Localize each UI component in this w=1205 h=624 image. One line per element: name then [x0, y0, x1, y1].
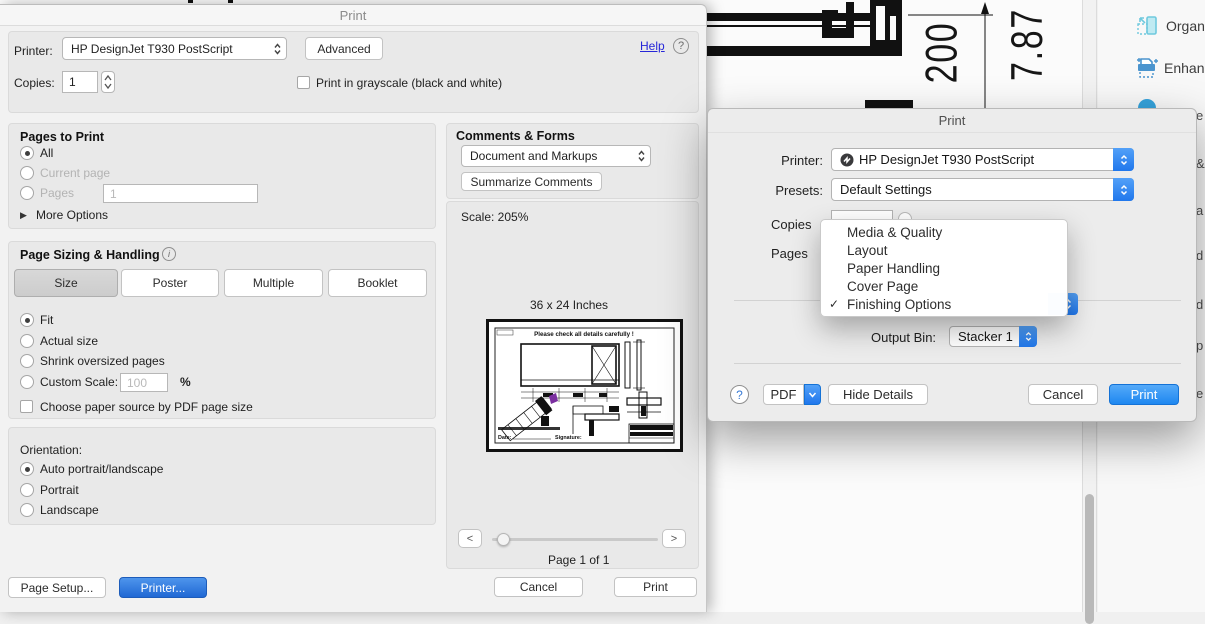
- macos-print-label: Print: [1131, 387, 1158, 402]
- cad-dimension-200: 200: [917, 22, 967, 84]
- radio-fit[interactable]: [20, 313, 34, 327]
- size-button-label: Size: [54, 276, 77, 290]
- radio-actual-size[interactable]: [20, 334, 34, 348]
- grayscale-checkbox[interactable]: [297, 76, 310, 89]
- percent-label: %: [180, 375, 191, 389]
- page-setup-button-label: Page Setup...: [21, 581, 94, 595]
- scrollbar-thumb[interactable]: [1085, 494, 1094, 624]
- radio-landscape[interactable]: [20, 503, 34, 517]
- more-options-triangle-icon[interactable]: ▶: [20, 210, 27, 221]
- more-options-label[interactable]: More Options: [36, 208, 108, 222]
- checkmark-icon: ✓: [821, 297, 847, 311]
- cad-dimension-787: 7.87: [1003, 8, 1053, 81]
- prev-page-button[interactable]: <: [458, 529, 482, 548]
- edge-text-fragment: e: [1196, 108, 1203, 123]
- chevron-right-icon: >: [671, 533, 677, 545]
- acrobat-cancel-button[interactable]: Cancel: [494, 577, 583, 597]
- radio-shrink-label: Shrink oversized pages: [40, 354, 165, 368]
- edge-text-fragment: a: [1196, 203, 1203, 218]
- page-preview-thumbnail: Please check all details carefully !: [486, 319, 683, 452]
- custom-scale-input[interactable]: 100: [120, 373, 168, 392]
- help-link[interactable]: Help: [640, 39, 665, 53]
- radio-custom-scale[interactable]: [20, 375, 34, 389]
- pages-range-input[interactable]: 1: [103, 184, 258, 203]
- printer-status-icon: [840, 153, 854, 167]
- preview-scale-text: Scale: 205%: [461, 210, 528, 224]
- macos-printer-select[interactable]: HP DesignJet T930 PostScript: [831, 148, 1134, 171]
- macos-dialog-titlebar[interactable]: Print: [708, 109, 1196, 133]
- acrobat-print-button[interactable]: Print: [614, 577, 697, 597]
- page-slider-track[interactable]: [492, 538, 658, 541]
- macos-printer-value: HP DesignJet T930 PostScript: [859, 152, 1034, 167]
- macos-dialog-title: Print: [939, 113, 966, 128]
- radio-auto-orientation[interactable]: [20, 462, 34, 476]
- macos-pages-label: Pages: [771, 246, 808, 261]
- chevron-left-icon: <: [467, 533, 473, 545]
- printer-button-label: Printer...: [141, 581, 186, 595]
- tools-panel-item-label: Enhan: [1164, 60, 1204, 76]
- page-count-text: Page 1 of 1: [548, 553, 609, 567]
- select-stepper: [1113, 148, 1134, 171]
- menu-item-paper-handling[interactable]: Paper Handling: [821, 259, 1067, 277]
- booklet-button[interactable]: Booklet: [328, 269, 427, 297]
- acrobat-print-dialog: Print Printer: HP DesignJet T930 PostScr…: [0, 4, 707, 612]
- macos-presets-value: Default Settings: [840, 182, 932, 197]
- radio-current-page-label: Current page: [40, 166, 110, 180]
- divider: [734, 300, 822, 301]
- menu-item-label: Layout: [847, 243, 888, 258]
- orientation-heading: Orientation:: [20, 443, 82, 457]
- divider: [734, 363, 1181, 364]
- page-slider-thumb[interactable]: [497, 533, 510, 546]
- comments-forms-dropdown-value: Document and Markups: [470, 149, 597, 163]
- macos-printer-label: Printer:: [753, 153, 823, 168]
- radio-current-page[interactable]: [20, 166, 34, 180]
- page-setup-button[interactable]: Page Setup...: [8, 577, 106, 598]
- size-button[interactable]: Size: [14, 269, 118, 297]
- radio-actual-size-label: Actual size: [40, 334, 98, 348]
- edge-text-fragment: e: [1196, 386, 1203, 401]
- question-glyph: ?: [736, 388, 743, 402]
- updown-chevrons-icon: [637, 150, 646, 163]
- booklet-button-label: Booklet: [357, 276, 397, 290]
- copies-label: Copies:: [14, 76, 55, 90]
- custom-scale-label: Custom Scale:: [40, 375, 118, 389]
- macos-copies-label: Copies: [771, 217, 811, 232]
- radio-pages-label: Pages: [40, 186, 74, 200]
- radio-all-label: All: [40, 146, 53, 160]
- menu-item-label: Finishing Options: [847, 297, 951, 312]
- toolbar-fragment: [188, 0, 193, 3]
- printer-dropdown[interactable]: HP DesignJet T930 PostScript: [62, 37, 287, 60]
- radio-all[interactable]: [20, 146, 34, 160]
- acrobat-dialog-title: Print: [340, 8, 367, 23]
- macos-help-button[interactable]: ?: [730, 385, 749, 404]
- info-icon[interactable]: i: [162, 247, 176, 261]
- macos-cancel-label: Cancel: [1043, 387, 1083, 402]
- divider: [1078, 300, 1181, 301]
- menu-item-cover-page[interactable]: Cover Page: [821, 277, 1067, 295]
- menu-item-label: Media & Quality: [847, 225, 942, 240]
- edge-text-fragment: d: [1196, 248, 1203, 263]
- radio-auto-orientation-label: Auto portrait/landscape: [40, 462, 163, 476]
- multiple-button-label: Multiple: [253, 276, 294, 290]
- hide-details-label: Hide Details: [843, 387, 913, 402]
- poster-button[interactable]: Poster: [121, 269, 219, 297]
- pdf-menu-button[interactable]: [804, 384, 821, 405]
- pdf-button[interactable]: PDF: [763, 384, 804, 405]
- custom-scale-value: 100: [127, 376, 147, 390]
- edge-text-fragment: d: [1196, 297, 1203, 312]
- grayscale-label: Print in grayscale (black and white): [316, 76, 502, 90]
- output-bin-label: Output Bin:: [871, 330, 936, 345]
- preview-size-text: 36 x 24 Inches: [530, 298, 608, 312]
- select-stepper: [1113, 178, 1134, 201]
- radio-landscape-label: Landscape: [40, 503, 99, 517]
- advanced-button-label: Advanced: [317, 42, 370, 56]
- comments-forms-dropdown[interactable]: Document and Markups: [461, 145, 651, 167]
- advanced-button[interactable]: Advanced: [305, 37, 383, 60]
- menu-item-layout[interactable]: Layout: [821, 241, 1067, 259]
- radio-portrait[interactable]: [20, 483, 34, 497]
- hide-details-button[interactable]: Hide Details: [828, 384, 928, 405]
- printer-dropdown-value: HP DesignJet T930 PostScript: [71, 42, 233, 56]
- toolbar-fragment: [228, 0, 233, 3]
- next-page-button[interactable]: >: [662, 529, 686, 548]
- info-glyph: i: [168, 249, 170, 259]
- macos-print-button[interactable]: Print: [1109, 384, 1179, 405]
- copies-input[interactable]: 1: [62, 71, 98, 93]
- poster-button-label: Poster: [153, 276, 188, 290]
- menu-item-label: Paper Handling: [847, 261, 940, 276]
- menu-item-finishing-options[interactable]: ✓ Finishing Options: [821, 295, 1067, 313]
- acrobat-cancel-label: Cancel: [520, 580, 557, 594]
- radio-shrink[interactable]: [20, 354, 34, 368]
- pages-range-value: 1: [110, 187, 117, 201]
- pdf-button-label: PDF: [771, 387, 797, 402]
- chevron-down-icon: [808, 392, 817, 398]
- tools-panel-item-enhance[interactable]: Enhan: [1135, 54, 1205, 82]
- summarize-comments-label: Summarize Comments: [470, 175, 592, 189]
- question-glyph: ?: [678, 40, 684, 52]
- paper-source-label: Choose paper source by PDF page size: [40, 400, 253, 414]
- organize-pages-icon: [1137, 16, 1159, 36]
- multiple-button[interactable]: Multiple: [224, 269, 323, 297]
- tools-panel-item-organize[interactable]: Organ: [1137, 14, 1205, 40]
- thumb-date-text: Date:: [498, 435, 512, 441]
- output-bin-select[interactable]: Stacker 1: [949, 326, 1037, 347]
- macos-presets-label: Presets:: [753, 183, 823, 198]
- paper-source-checkbox[interactable]: [20, 400, 33, 413]
- printer-label: Printer:: [14, 44, 53, 58]
- macos-cancel-button[interactable]: Cancel: [1028, 384, 1098, 405]
- thumb-title-text: Please check all details carefully !: [534, 331, 634, 338]
- radio-pages[interactable]: [20, 186, 34, 200]
- page-sizing-section: [8, 241, 436, 419]
- macos-presets-select[interactable]: Default Settings: [831, 178, 1134, 201]
- select-stepper: [1019, 326, 1037, 347]
- tools-panel-item-label: Organ: [1166, 18, 1205, 34]
- page-sizing-heading: Page Sizing & Handling: [20, 248, 160, 262]
- menu-item-media-quality[interactable]: Media & Quality: [821, 223, 1067, 241]
- menu-item-label: Cover Page: [847, 279, 918, 294]
- thumb-signature-text: Signature:: [555, 435, 582, 441]
- enhance-scans-icon: [1135, 56, 1159, 80]
- cad-thumbnail-drawing: Please check all details carefully !: [489, 322, 680, 449]
- updown-chevrons-icon: [102, 72, 114, 92]
- output-bin-value: Stacker 1: [958, 329, 1013, 344]
- edge-text-fragment: &: [1196, 156, 1205, 171]
- help-question-icon[interactable]: ?: [673, 38, 689, 54]
- acrobat-print-label: Print: [643, 580, 668, 594]
- radio-portrait-label: Portrait: [40, 483, 79, 497]
- radio-fit-label: Fit: [40, 313, 53, 327]
- comments-forms-heading: Comments & Forms: [456, 129, 575, 143]
- acrobat-dialog-titlebar[interactable]: Print: [0, 5, 706, 26]
- updown-chevrons-icon: [273, 42, 282, 55]
- summarize-comments-button[interactable]: Summarize Comments: [461, 172, 602, 191]
- pages-to-print-heading: Pages to Print: [20, 130, 104, 144]
- printer-button[interactable]: Printer...: [119, 577, 207, 598]
- copies-value: 1: [69, 75, 76, 89]
- pane-selector-menu: Media & Quality Layout Paper Handling Co…: [820, 219, 1068, 317]
- copies-stepper[interactable]: [101, 71, 115, 93]
- edge-text-fragment: p: [1196, 338, 1203, 353]
